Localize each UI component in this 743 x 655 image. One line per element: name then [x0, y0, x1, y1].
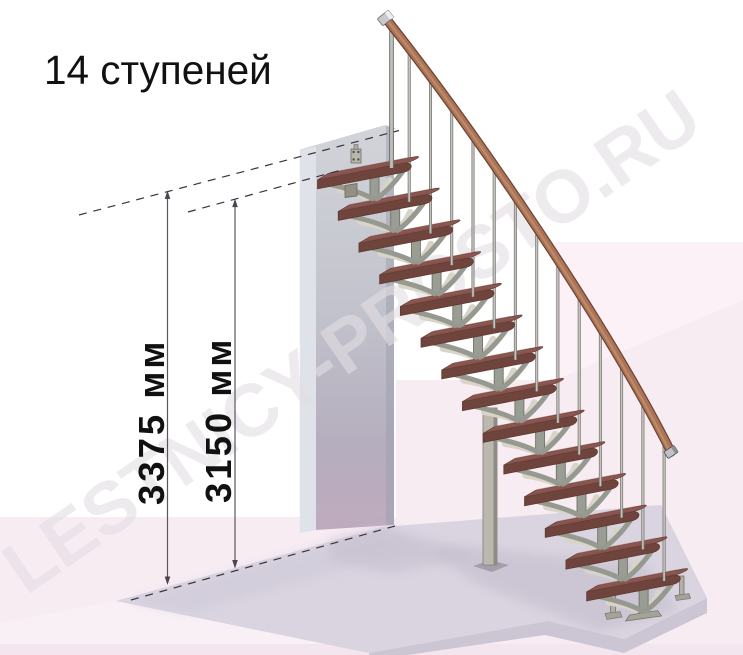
svg-text:14 ступеней: 14 ступеней — [44, 47, 272, 93]
svg-text:3150 мм: 3150 мм — [198, 337, 239, 503]
svg-text:3375 мм: 3375 мм — [131, 339, 172, 505]
